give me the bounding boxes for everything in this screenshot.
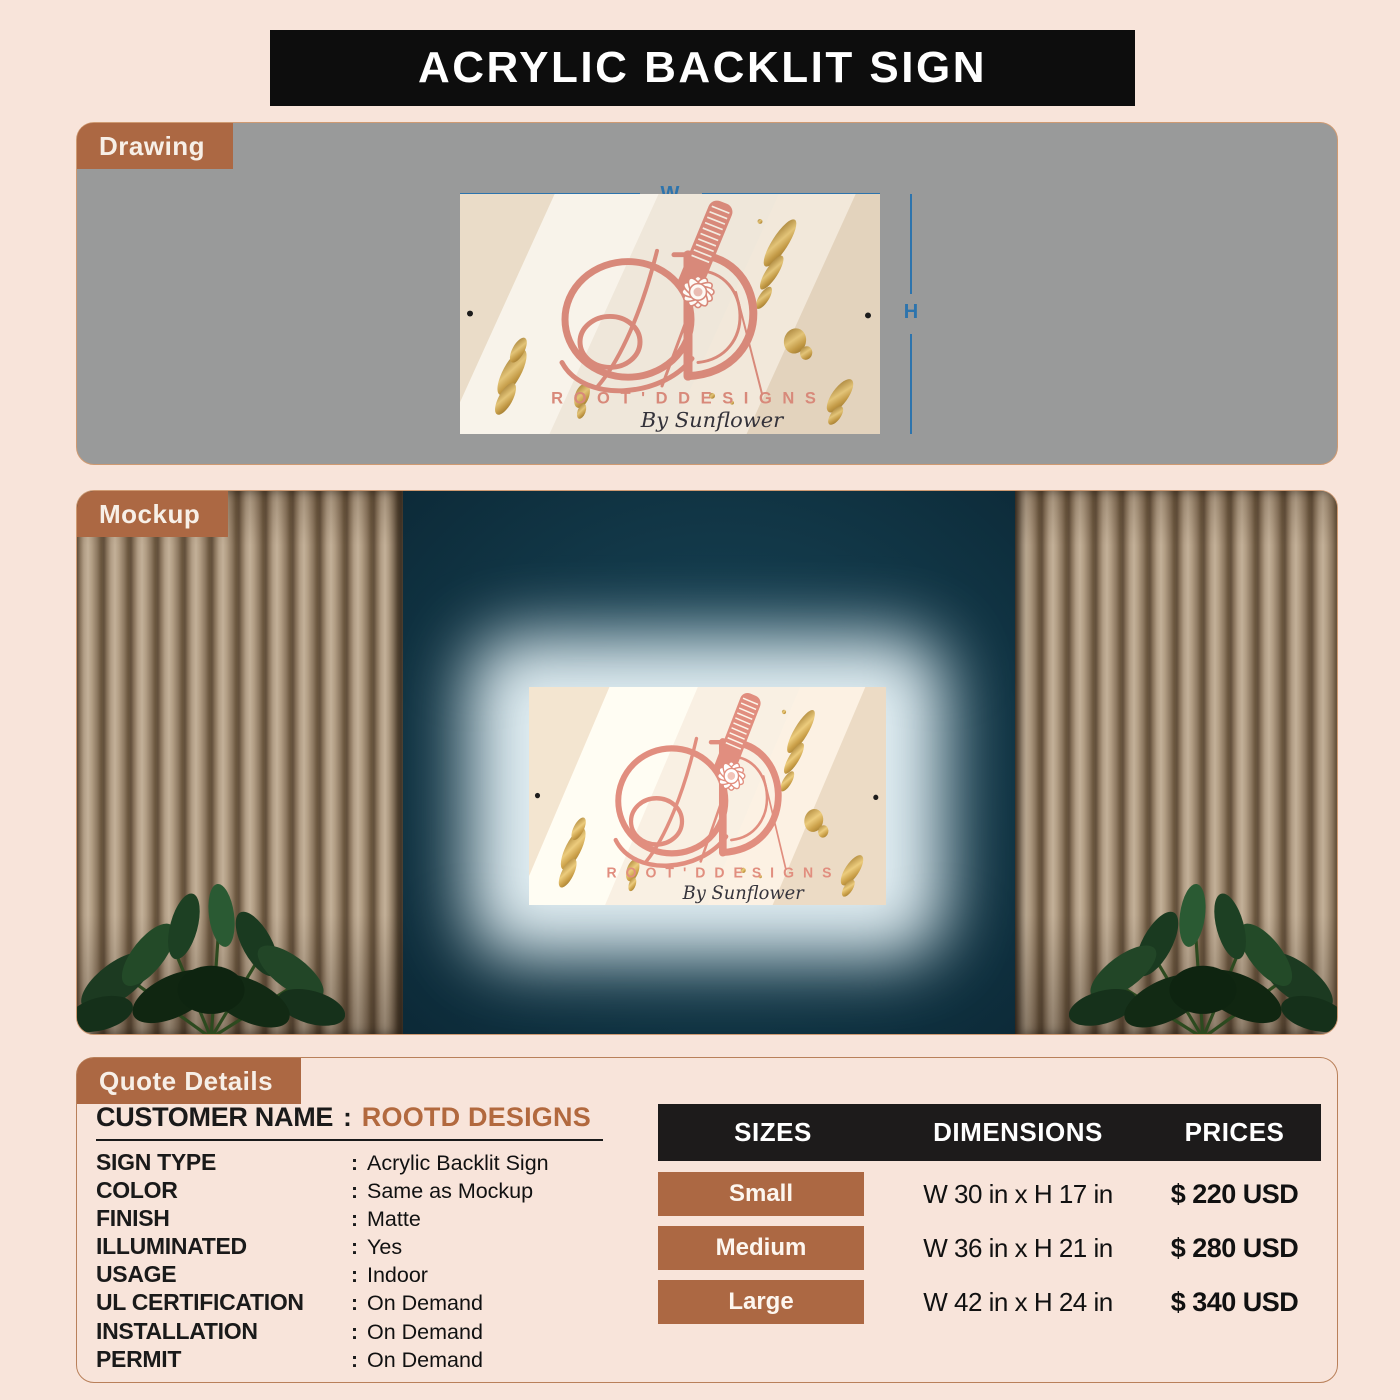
field-colon: :: [351, 1180, 367, 1204]
header-sizes: SIZES: [658, 1117, 888, 1148]
dimensions-small: W 30 in x H 17 in: [888, 1179, 1148, 1210]
field-label: SIGN TYPE: [96, 1149, 351, 1176]
customer-name-value: ROOTD DESIGNS: [362, 1102, 591, 1133]
price-small: $ 220 USD: [1148, 1179, 1321, 1210]
quote-details-panel: Quote Details CUSTOMER NAME : ROOTD DESI…: [76, 1057, 1338, 1383]
header-dimensions: DIMENSIONS: [888, 1117, 1148, 1148]
mockup-panel: Mockup: [76, 490, 1338, 1035]
price-large: $ 340 USD: [1148, 1287, 1321, 1318]
field-label: USAGE: [96, 1261, 351, 1288]
title-bar: ACRYLIC BACKLIT SIGN: [270, 30, 1135, 106]
pricing-table-header: SIZES DIMENSIONS PRICES: [658, 1104, 1321, 1161]
quote-fields: CUSTOMER NAME : ROOTD DESIGNS SIGN TYPE …: [96, 1102, 641, 1374]
size-button-small[interactable]: Small: [658, 1172, 864, 1216]
field-row-ul-certification: UL CERTIFICATION : On Demand: [96, 1289, 641, 1317]
field-value: Acrylic Backlit Sign: [367, 1151, 641, 1176]
table-row-large: Large W 42 in x H 24 in $ 340 USD: [658, 1280, 1321, 1324]
dimensions-large: W 42 in x H 24 in: [888, 1287, 1148, 1318]
customer-name-row: CUSTOMER NAME : ROOTD DESIGNS: [96, 1102, 641, 1133]
quote-details-tab: Quote Details: [77, 1058, 301, 1104]
field-label: INSTALLATION: [96, 1318, 351, 1345]
drawing-panel: Drawing W H: [76, 122, 1338, 465]
field-colon: :: [351, 1292, 367, 1316]
size-button-medium[interactable]: Medium: [658, 1226, 864, 1270]
table-row-medium: Medium W 36 in x H 21 in $ 280 USD: [658, 1226, 1321, 1270]
page-title: ACRYLIC BACKLIT SIGN: [418, 43, 987, 93]
field-value: On Demand: [367, 1291, 641, 1316]
field-colon: :: [351, 1236, 367, 1260]
field-label: FINISH: [96, 1205, 351, 1232]
field-row-installation: INSTALLATION : On Demand: [96, 1318, 641, 1346]
field-label: ILLUMINATED: [96, 1233, 351, 1260]
field-row-finish: FINISH : Matte: [96, 1205, 641, 1233]
field-label: UL CERTIFICATION: [96, 1289, 351, 1316]
height-dimension-marker: H: [899, 194, 923, 434]
field-value: Yes: [367, 1235, 641, 1260]
table-row-small: Small W 30 in x H 17 in $ 220 USD: [658, 1172, 1321, 1216]
field-colon: :: [351, 1264, 367, 1288]
mockup-tab-label: Mockup: [99, 499, 200, 530]
size-button-large[interactable]: Large: [658, 1280, 864, 1324]
customer-name-colon: :: [343, 1102, 352, 1133]
drawing-tab: Drawing: [77, 123, 233, 169]
drawing-tab-label: Drawing: [99, 131, 205, 162]
field-value: Same as Mockup: [367, 1179, 641, 1204]
field-colon: :: [351, 1321, 367, 1345]
quote-details-tab-label: Quote Details: [99, 1066, 273, 1097]
field-label: COLOR: [96, 1177, 351, 1204]
field-row-sign-type: SIGN TYPE : Acrylic Backlit Sign: [96, 1149, 641, 1177]
height-dimension-label: H: [899, 301, 923, 324]
field-row-usage: USAGE : Indoor: [96, 1261, 641, 1289]
header-prices: PRICES: [1148, 1117, 1321, 1148]
field-colon: :: [351, 1349, 367, 1373]
sign-mockup-image: [529, 687, 886, 905]
field-row-color: COLOR : Same as Mockup: [96, 1177, 641, 1205]
field-row-permit: PERMIT : On Demand: [96, 1346, 641, 1374]
field-value: On Demand: [367, 1348, 641, 1373]
field-value: Matte: [367, 1207, 641, 1232]
quote-sheet: R O O T ' D D E S I G N S By Sunflower: [0, 0, 1400, 1400]
field-row-illuminated: ILLUMINATED : Yes: [96, 1233, 641, 1261]
field-colon: :: [351, 1152, 367, 1176]
plant-right: [1069, 852, 1338, 1035]
mockup-tab: Mockup: [77, 491, 228, 537]
pricing-table: SIZES DIMENSIONS PRICES Small W 30 in x …: [658, 1104, 1321, 1324]
field-value: Indoor: [367, 1263, 641, 1288]
field-value: On Demand: [367, 1320, 641, 1345]
field-label: PERMIT: [96, 1346, 351, 1373]
dimensions-medium: W 36 in x H 21 in: [888, 1233, 1148, 1264]
field-colon: :: [351, 1208, 367, 1232]
customer-name-label: CUSTOMER NAME: [96, 1102, 333, 1133]
plant-left: [76, 852, 345, 1035]
sign-drawing-image: [460, 194, 880, 434]
customer-underline: [96, 1139, 603, 1141]
price-medium: $ 280 USD: [1148, 1233, 1321, 1264]
